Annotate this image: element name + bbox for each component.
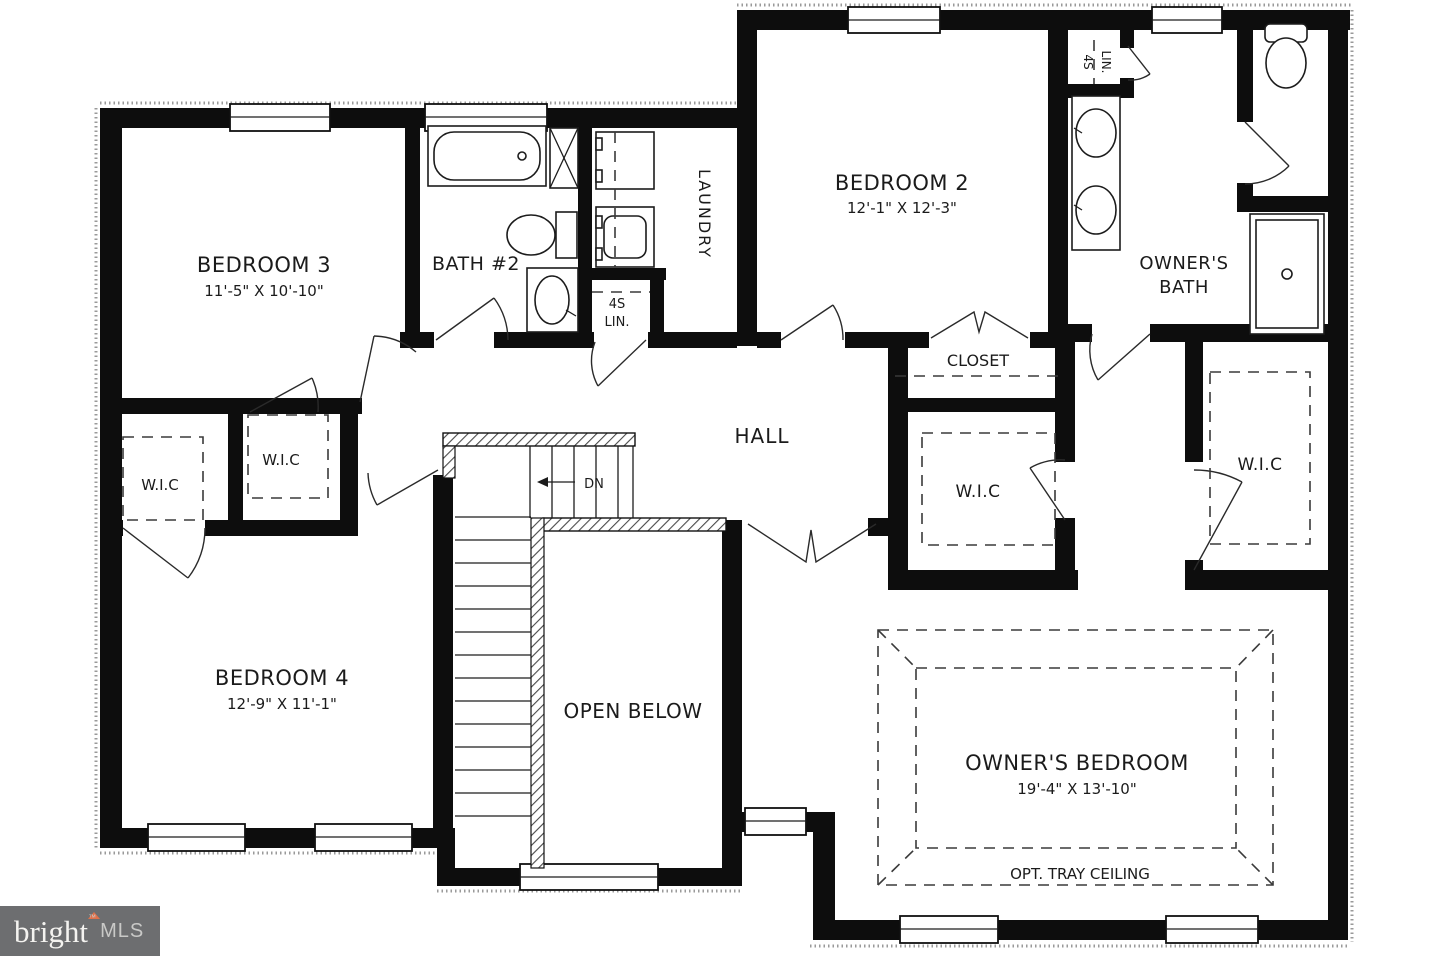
label-closet: CLOSET (947, 351, 1009, 370)
door-linen-owner (1128, 46, 1150, 80)
door-bedroom4 (368, 470, 438, 505)
label-bedroom3-dims: 11'-5" X 10'-10" (204, 282, 324, 300)
open-below-rail (531, 518, 544, 868)
label-linen-owner-1: 4S (1081, 54, 1095, 69)
label-wic-left2: W.I.C (262, 451, 300, 469)
floor-plan-svg: BEDROOM 3 11'-5" X 10'-10" BATH #2 LAUND… (0, 0, 1440, 960)
window (900, 916, 998, 943)
label-bedroom3: BEDROOM 3 (197, 253, 331, 277)
staircase (443, 433, 726, 868)
label-stairs-dn: DN (584, 477, 604, 492)
label-bedroom4: BEDROOM 4 (215, 666, 349, 690)
door-linen-hall (591, 340, 646, 386)
label-linen-hall-2: LIN. (605, 315, 630, 330)
label-bath2: BATH #2 (432, 253, 520, 275)
label-open-below: OPEN BELOW (563, 699, 702, 723)
shower-owners (1250, 214, 1324, 334)
stair-treads-lower (455, 517, 531, 816)
bifold-owners-bedroom (748, 524, 876, 562)
washer-dryer (596, 132, 654, 267)
door-wic-center (1030, 460, 1065, 520)
exterior-walls (100, 10, 1350, 940)
window (230, 104, 330, 131)
door-bedroom3 (360, 336, 416, 402)
bathtub (428, 126, 546, 186)
label-hall: HALL (734, 424, 789, 448)
brightmls-logo: bright ™ MLS (0, 906, 160, 956)
sink-bath2 (527, 268, 578, 332)
door-toilet-room (1245, 122, 1289, 184)
label-linen-hall-1: 4S (609, 297, 626, 312)
label-wic-left1: W.I.C (141, 476, 179, 494)
door-wic-right (1194, 470, 1242, 570)
label-wic-center: W.I.C (955, 482, 1000, 502)
label-owners-bedroom-dims: 19'-4" X 13'-10" (1017, 780, 1137, 798)
floor-plan-image: BEDROOM 3 11'-5" X 10'-10" BATH #2 LAUND… (0, 0, 1440, 960)
window (1152, 7, 1222, 33)
window (148, 824, 245, 851)
label-linen-owner-2: LIN. (1099, 50, 1113, 73)
down-arrow-icon (537, 477, 575, 487)
brightmls-tm: ™ (88, 914, 96, 922)
window (848, 7, 940, 33)
stair-rail (443, 446, 455, 478)
label-owners-bath-2: BATH (1159, 277, 1209, 298)
window (745, 808, 806, 835)
label-wic-right: W.I.C (1237, 455, 1282, 475)
stair-rail (543, 518, 726, 531)
brightmls-logo-brand: bright ™ (14, 916, 92, 947)
toilet-bath2 (507, 212, 577, 258)
linen-shelf-icon (550, 128, 578, 188)
bifold-closet (931, 312, 1028, 338)
window (315, 824, 412, 851)
door-owners-bath (1090, 334, 1150, 380)
toilet-owners (1265, 24, 1307, 88)
window (1166, 916, 1258, 943)
label-bedroom4-dims: 12'-9" X 11'-1" (227, 695, 337, 713)
label-bedroom2-dims: 12'-1" X 12'-3" (847, 199, 957, 217)
door-bedroom2 (781, 305, 843, 340)
stair-rail (443, 433, 635, 446)
label-tray-ceiling: OPT. TRAY CEILING (1010, 865, 1150, 883)
double-vanity-owners (1072, 96, 1120, 250)
brightmls-brand-text: bright (14, 914, 88, 949)
label-bedroom2: BEDROOM 2 (835, 171, 969, 195)
door-wic-left (123, 528, 205, 578)
brightmls-mls-text: MLS (100, 920, 144, 943)
label-laundry: LAUNDRY (695, 169, 714, 259)
label-owners-bath-1: OWNER'S (1139, 253, 1228, 274)
label-owners-bedroom: OWNER'S BEDROOM (965, 751, 1189, 775)
